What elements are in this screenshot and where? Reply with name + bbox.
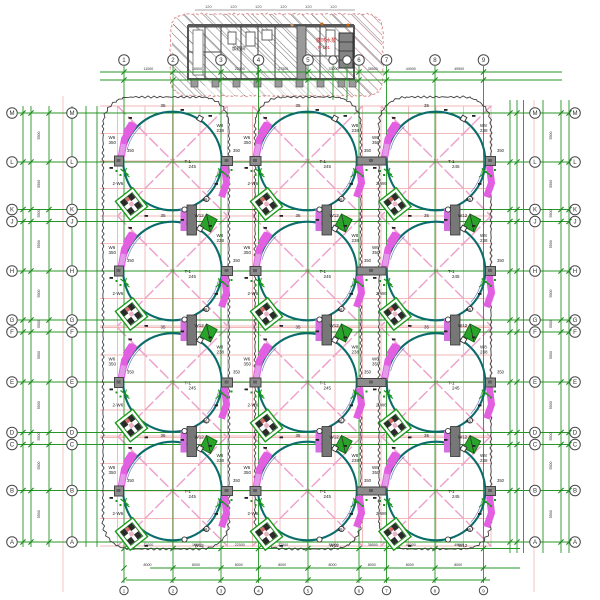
svg-text:P-101: P-101	[318, 45, 331, 50]
svg-text:E: E	[10, 379, 14, 386]
svg-text:96: 96	[203, 307, 209, 312]
svg-text:5500: 5500	[37, 132, 41, 140]
svg-text:5500: 5500	[549, 510, 553, 518]
svg-text:44000: 44000	[406, 543, 416, 547]
svg-text:35: 35	[161, 325, 167, 330]
svg-text:350: 350	[109, 470, 117, 475]
svg-text:120: 120	[205, 4, 212, 9]
svg-text:D: D	[573, 430, 578, 437]
svg-text:120: 120	[330, 4, 337, 9]
svg-text:245: 245	[189, 274, 197, 279]
svg-text:350: 350	[127, 478, 135, 483]
svg-text:8000: 8000	[235, 563, 243, 567]
svg-text:3: 3	[220, 589, 223, 595]
svg-text:2-W6: 2-W6	[376, 511, 387, 516]
svg-text:96: 96	[338, 419, 344, 424]
svg-text:350: 350	[372, 362, 380, 367]
svg-text:J: J	[573, 219, 576, 226]
svg-text:8000: 8000	[144, 563, 152, 567]
svg-text:35: 35	[296, 103, 302, 108]
svg-text:5500: 5500	[549, 240, 553, 248]
svg-text:2-W6: 2-W6	[248, 403, 259, 408]
svg-text:11000: 11000	[144, 543, 154, 547]
svg-text:2-W6: 2-W6	[376, 181, 387, 186]
svg-text:245: 245	[324, 164, 332, 169]
svg-text:35: 35	[161, 103, 167, 108]
svg-text:5500: 5500	[549, 210, 553, 218]
svg-text:K: K	[10, 207, 14, 214]
svg-text:2-W6: 2-W6	[376, 403, 387, 408]
svg-text:96: 96	[338, 307, 344, 312]
svg-text:245: 245	[189, 386, 197, 391]
svg-text:B: B	[10, 488, 14, 495]
svg-text:350: 350	[233, 478, 241, 483]
svg-text:5: 5	[307, 589, 310, 595]
svg-text:6: 6	[358, 589, 361, 595]
svg-text:F: F	[70, 329, 74, 336]
svg-text:350: 350	[244, 250, 252, 255]
svg-text:M: M	[9, 110, 14, 117]
svg-text:350: 350	[109, 362, 117, 367]
svg-text:1: 1	[123, 589, 126, 595]
svg-text:8000: 8000	[329, 563, 337, 567]
svg-text:B: B	[70, 488, 74, 495]
svg-text:F: F	[533, 329, 537, 336]
svg-text:5500: 5500	[549, 351, 553, 359]
svg-text:K: K	[70, 207, 74, 214]
svg-text:D: D	[10, 430, 15, 437]
svg-text:33000: 33000	[329, 67, 339, 71]
svg-text:350: 350	[497, 478, 505, 483]
svg-text:96: 96	[466, 307, 472, 312]
svg-text:循环水泵: 循环水泵	[316, 37, 336, 44]
svg-text:5500: 5500	[37, 401, 41, 409]
svg-text:350: 350	[233, 148, 241, 153]
svg-text:W12: W12	[195, 435, 205, 440]
svg-text:C: C	[573, 442, 578, 449]
svg-text:H: H	[573, 268, 577, 275]
svg-text:5500: 5500	[37, 240, 41, 248]
svg-text:2-W6: 2-W6	[376, 291, 387, 296]
svg-text:49500: 49500	[454, 67, 464, 71]
svg-text:2-W6: 2-W6	[113, 181, 124, 186]
svg-text:加药间: 加药间	[232, 45, 246, 52]
svg-text:96: 96	[203, 197, 209, 202]
svg-text:8000: 8000	[406, 563, 414, 567]
svg-text:22000: 22000	[235, 67, 245, 71]
svg-text:5500: 5500	[549, 180, 553, 188]
svg-text:120: 120	[305, 4, 312, 9]
svg-text:D: D	[70, 430, 75, 437]
svg-text:238: 238	[217, 458, 225, 463]
svg-text:35: 35	[424, 433, 430, 438]
svg-text:W12: W12	[330, 435, 340, 440]
svg-text:F: F	[10, 329, 14, 336]
svg-text:350: 350	[244, 140, 252, 145]
svg-text:J: J	[70, 219, 73, 226]
svg-text:8: 8	[434, 589, 437, 595]
svg-text:96: 96	[338, 197, 344, 202]
svg-text:5500: 5500	[37, 290, 41, 298]
svg-text:238: 238	[352, 458, 360, 463]
svg-text:W12: W12	[195, 323, 205, 328]
svg-text:120: 120	[280, 4, 287, 9]
svg-text:350: 350	[109, 250, 117, 255]
svg-text:H: H	[70, 268, 74, 275]
svg-text:5500: 5500	[549, 320, 553, 328]
svg-text:35: 35	[424, 325, 430, 330]
svg-text:5500: 5500	[549, 401, 553, 409]
svg-text:5500: 5500	[37, 320, 41, 328]
svg-text:K: K	[533, 207, 537, 214]
svg-text:M: M	[69, 110, 74, 117]
svg-text:W12: W12	[195, 213, 205, 218]
svg-text:245: 245	[189, 494, 197, 499]
svg-text:H: H	[10, 268, 14, 275]
svg-text:E: E	[573, 379, 577, 386]
svg-text:2-W6: 2-W6	[113, 403, 124, 408]
svg-text:350: 350	[364, 370, 372, 375]
svg-text:5500: 5500	[549, 132, 553, 140]
svg-text:9: 9	[482, 589, 485, 595]
svg-text:16500: 16500	[192, 543, 202, 547]
svg-text:245: 245	[189, 164, 197, 169]
svg-text:35: 35	[296, 325, 302, 330]
svg-text:27500: 27500	[278, 67, 288, 71]
svg-text:35: 35	[161, 433, 167, 438]
svg-text:27500: 27500	[278, 543, 288, 547]
svg-text:35: 35	[296, 433, 302, 438]
svg-text:350: 350	[364, 258, 372, 263]
svg-text:350: 350	[127, 258, 135, 263]
svg-text:38500: 38500	[368, 543, 378, 547]
svg-text:M: M	[572, 110, 577, 117]
svg-text:350: 350	[233, 370, 241, 375]
svg-text:C: C	[533, 442, 538, 449]
svg-text:350: 350	[497, 148, 505, 153]
svg-text:350: 350	[372, 140, 380, 145]
svg-text:96: 96	[466, 197, 472, 202]
svg-text:K: K	[573, 207, 577, 214]
svg-text:16500: 16500	[192, 67, 202, 71]
svg-text:350: 350	[364, 148, 372, 153]
svg-text:4: 4	[257, 589, 260, 595]
svg-text:350: 350	[127, 370, 135, 375]
svg-text:350: 350	[372, 470, 380, 475]
svg-text:245: 245	[452, 164, 460, 169]
svg-text:238: 238	[217, 350, 225, 355]
svg-text:G: G	[70, 317, 75, 324]
svg-text:2-W6: 2-W6	[113, 291, 124, 296]
svg-text:B: B	[533, 488, 537, 495]
svg-text:5500: 5500	[37, 210, 41, 218]
svg-text:245: 245	[452, 386, 460, 391]
svg-text:120: 120	[230, 4, 237, 9]
svg-text:F: F	[573, 329, 577, 336]
svg-text:44000: 44000	[406, 67, 416, 71]
svg-text:C: C	[70, 442, 75, 449]
svg-text:238: 238	[352, 238, 360, 243]
svg-text:245: 245	[324, 274, 332, 279]
svg-text:M: M	[532, 110, 537, 117]
svg-text:5500: 5500	[549, 433, 553, 441]
svg-text:350: 350	[497, 370, 505, 375]
svg-text:96: 96	[466, 419, 472, 424]
svg-text:238: 238	[352, 128, 360, 133]
svg-text:350: 350	[244, 470, 252, 475]
svg-text:E: E	[533, 379, 537, 386]
svg-text:350: 350	[497, 258, 505, 263]
svg-text:E: E	[70, 379, 74, 386]
svg-text:G: G	[533, 317, 538, 324]
svg-text:2-W6: 2-W6	[248, 291, 259, 296]
svg-text:2: 2	[172, 589, 175, 595]
svg-text:W12: W12	[458, 213, 468, 218]
svg-text:245: 245	[452, 494, 460, 499]
svg-text:2-W6: 2-W6	[248, 511, 259, 516]
svg-text:245: 245	[324, 494, 332, 499]
svg-text:2-W6: 2-W6	[113, 511, 124, 516]
svg-text:8000: 8000	[192, 563, 200, 567]
svg-text:D: D	[533, 430, 538, 437]
svg-text:49500: 49500	[454, 543, 464, 547]
svg-text:350: 350	[372, 250, 380, 255]
svg-text:238: 238	[352, 350, 360, 355]
svg-text:96: 96	[203, 527, 209, 532]
svg-text:C: C	[10, 442, 15, 449]
svg-text:5500: 5500	[37, 462, 41, 470]
svg-text:5500: 5500	[37, 180, 41, 188]
svg-text:238: 238	[480, 128, 488, 133]
svg-text:33000: 33000	[329, 543, 339, 547]
svg-text:W12: W12	[458, 435, 468, 440]
svg-text:245: 245	[324, 386, 332, 391]
svg-text:96: 96	[338, 527, 344, 532]
svg-text:350: 350	[244, 362, 252, 367]
svg-text:35: 35	[161, 213, 167, 218]
svg-text:96: 96	[466, 527, 472, 532]
svg-text:350: 350	[233, 258, 241, 263]
svg-text:238: 238	[480, 350, 488, 355]
svg-text:G: G	[573, 317, 578, 324]
svg-text:5500: 5500	[37, 433, 41, 441]
svg-text:38500: 38500	[368, 67, 378, 71]
svg-text:5500: 5500	[37, 510, 41, 518]
svg-text:H: H	[533, 268, 537, 275]
svg-text:238: 238	[480, 238, 488, 243]
svg-text:238: 238	[480, 458, 488, 463]
svg-text:238: 238	[217, 128, 225, 133]
svg-text:120: 120	[255, 4, 262, 9]
svg-text:W12: W12	[330, 213, 340, 218]
svg-text:W12: W12	[330, 323, 340, 328]
svg-text:8000: 8000	[278, 563, 286, 567]
svg-text:245: 245	[452, 274, 460, 279]
svg-text:11000: 11000	[144, 67, 154, 71]
svg-text:W12: W12	[458, 323, 468, 328]
svg-text:2-W6: 2-W6	[248, 181, 259, 186]
svg-text:7: 7	[385, 589, 388, 595]
svg-text:5500: 5500	[37, 351, 41, 359]
svg-text:238: 238	[217, 238, 225, 243]
svg-text:8000: 8000	[368, 563, 376, 567]
svg-text:350: 350	[109, 140, 117, 145]
svg-text:22000: 22000	[235, 543, 245, 547]
svg-text:G: G	[10, 317, 15, 324]
svg-text:96: 96	[203, 419, 209, 424]
svg-text:5500: 5500	[549, 462, 553, 470]
svg-text:J: J	[533, 219, 536, 226]
svg-text:35: 35	[424, 213, 430, 218]
svg-text:350: 350	[364, 478, 372, 483]
svg-text:350: 350	[127, 148, 135, 153]
svg-text:J: J	[10, 219, 13, 226]
svg-text:B: B	[573, 488, 577, 495]
svg-text:35: 35	[296, 213, 302, 218]
svg-text:8000: 8000	[454, 563, 462, 567]
svg-text:5500: 5500	[549, 290, 553, 298]
svg-text:35: 35	[424, 103, 430, 108]
